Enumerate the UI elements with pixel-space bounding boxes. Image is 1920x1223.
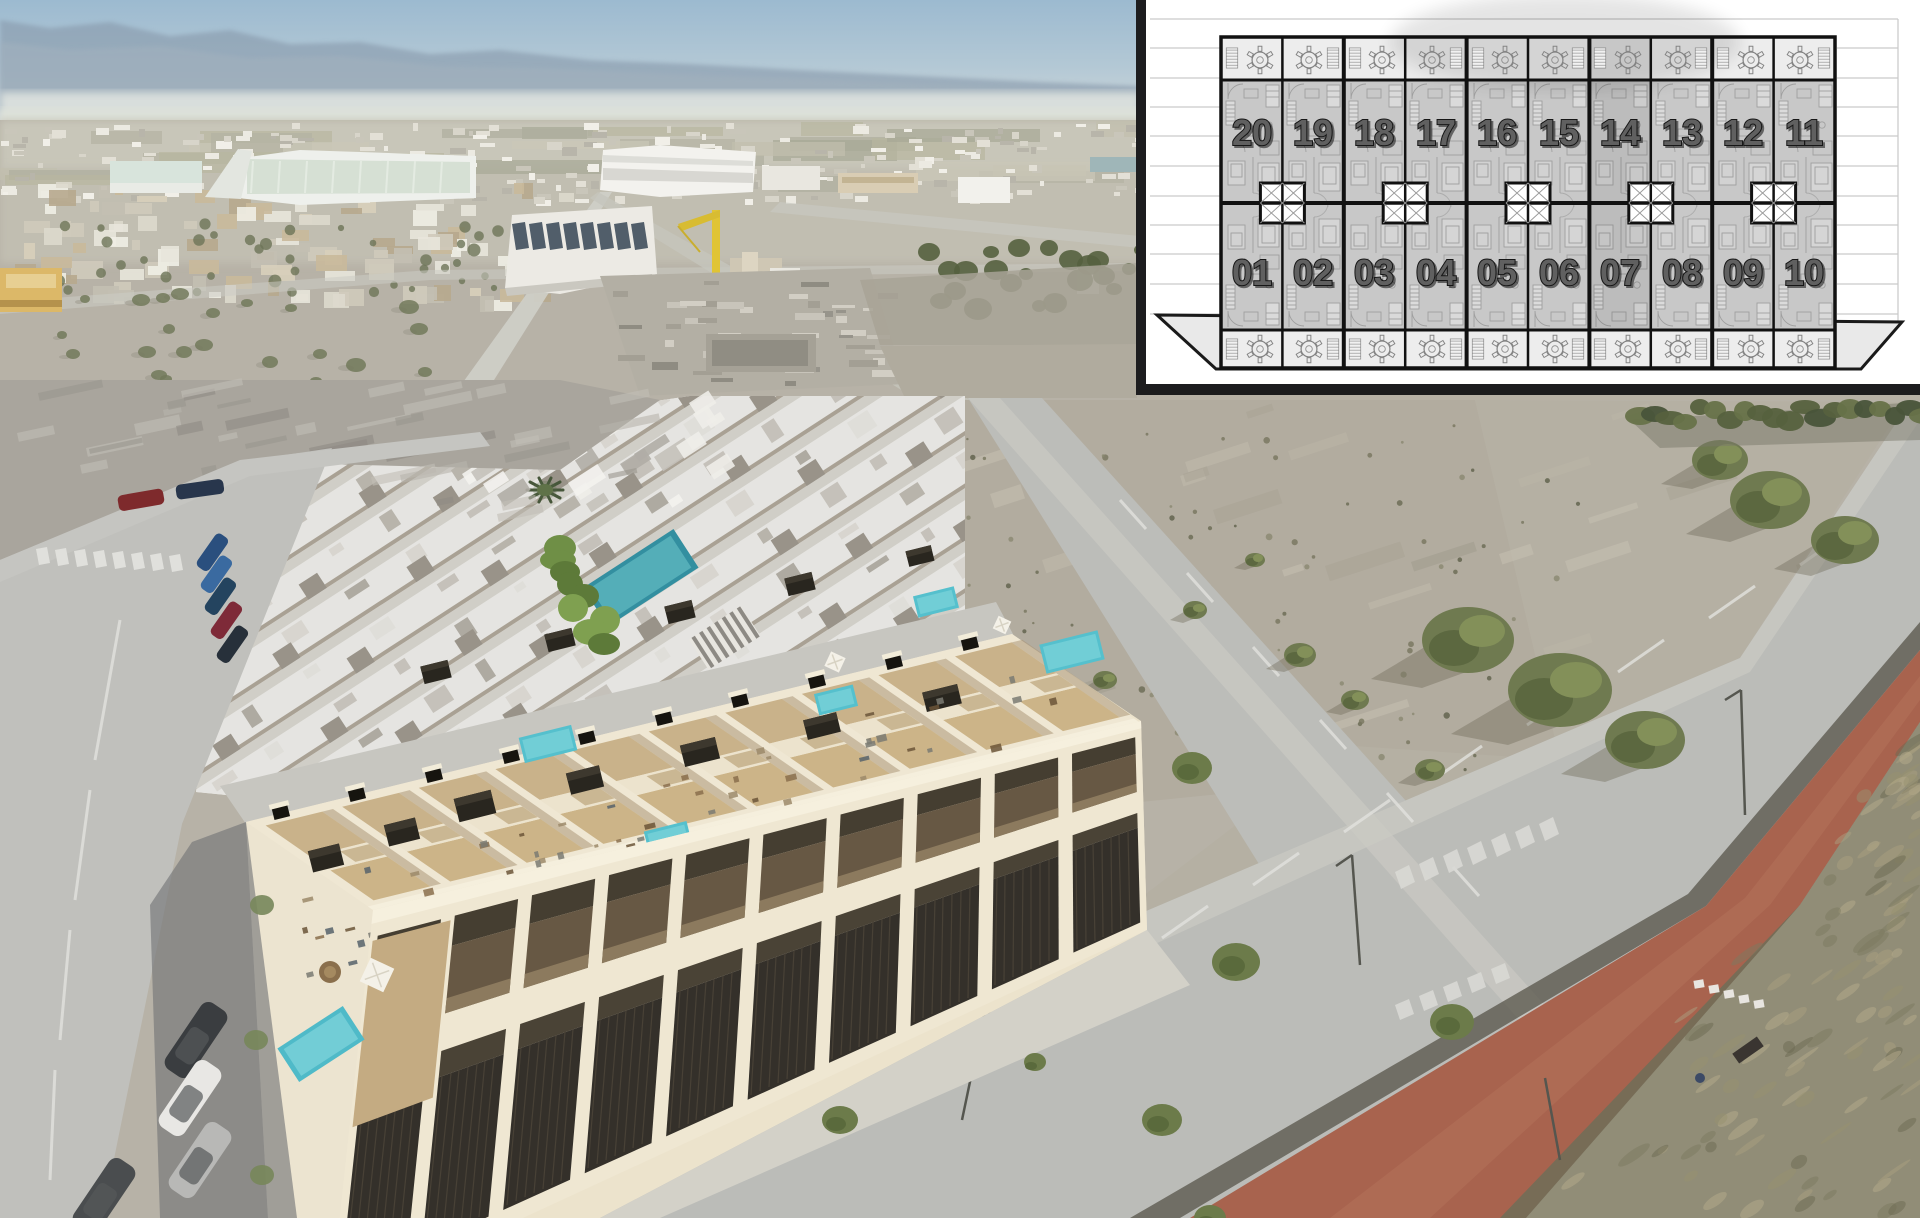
svg-text:11: 11	[1785, 112, 1823, 153]
svg-text:19: 19	[1293, 112, 1333, 153]
svg-text:01: 01	[1232, 252, 1272, 293]
svg-text:20: 20	[1232, 112, 1272, 153]
svg-text:06: 06	[1539, 252, 1579, 293]
svg-text:13: 13	[1662, 112, 1702, 153]
svg-text:03: 03	[1354, 252, 1394, 293]
svg-text:14: 14	[1600, 112, 1640, 153]
svg-text:02: 02	[1293, 252, 1333, 293]
svg-text:04: 04	[1416, 252, 1456, 293]
svg-text:09: 09	[1723, 252, 1763, 293]
svg-text:18: 18	[1354, 112, 1394, 153]
svg-text:16: 16	[1477, 112, 1517, 153]
svg-text:12: 12	[1723, 112, 1763, 153]
svg-text:15: 15	[1539, 112, 1579, 153]
svg-text:07: 07	[1600, 252, 1640, 293]
svg-text:08: 08	[1662, 252, 1702, 293]
svg-text:17: 17	[1416, 112, 1456, 153]
svg-text:05: 05	[1477, 252, 1517, 293]
svg-text:10: 10	[1784, 252, 1824, 293]
